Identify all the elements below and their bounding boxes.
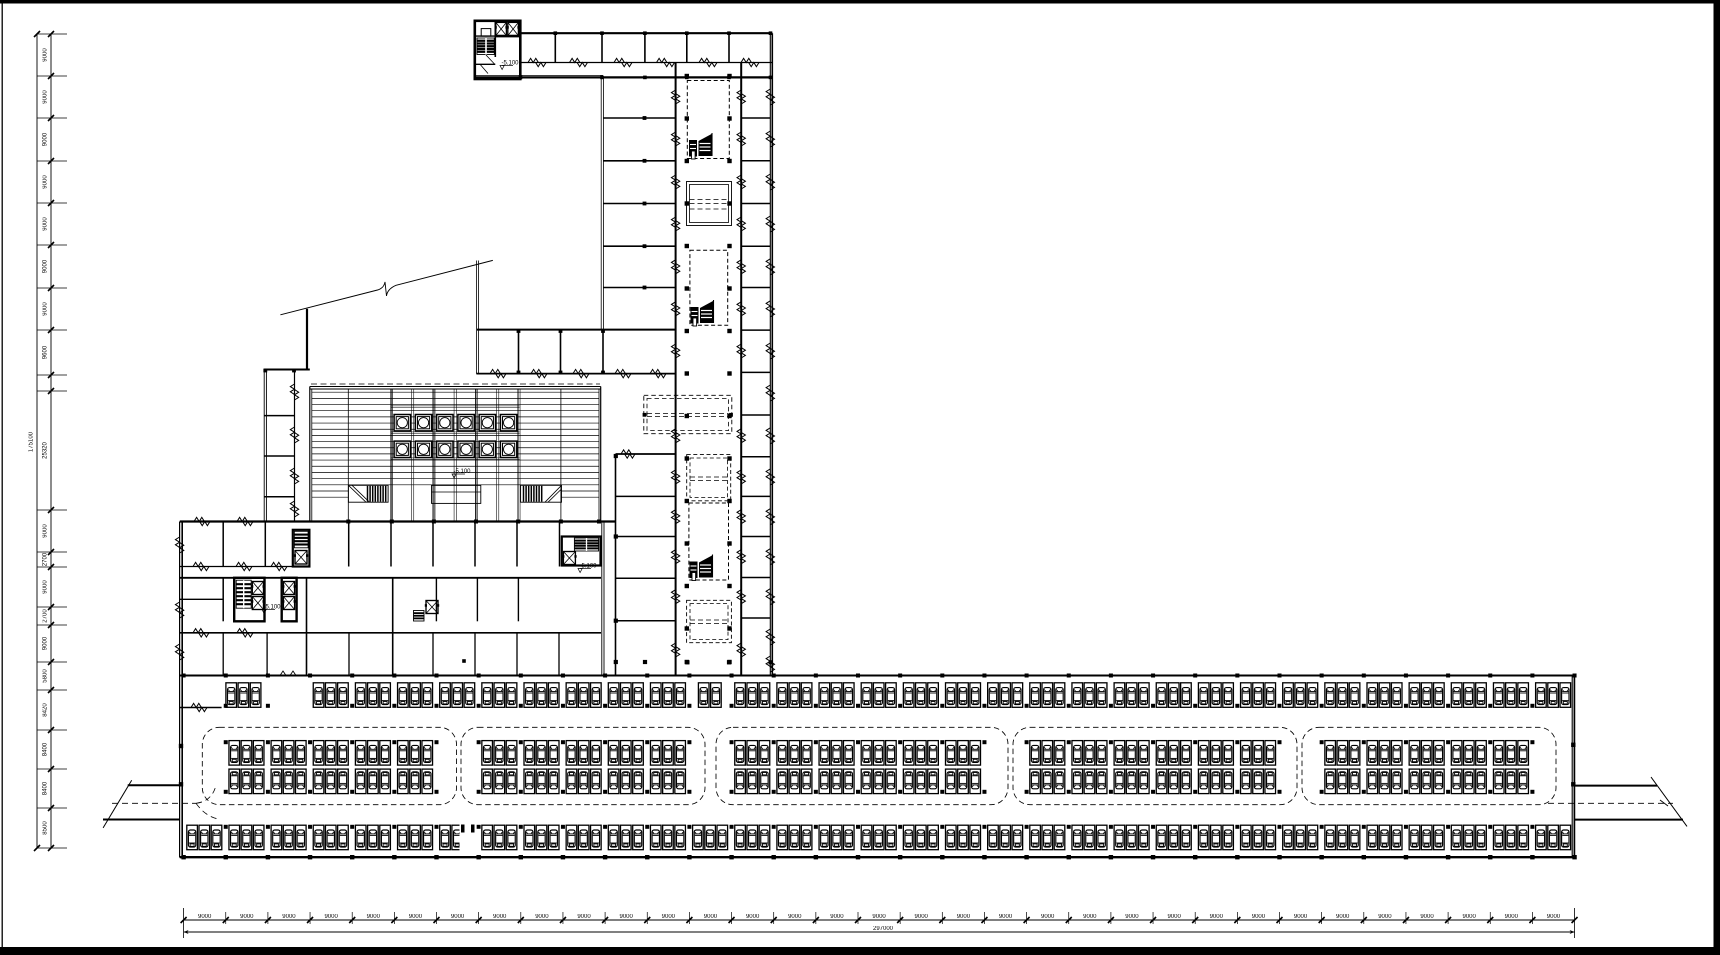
- svg-text:-5.100: -5.100: [502, 60, 520, 66]
- svg-text:297000: 297000: [873, 926, 894, 932]
- svg-text:9000: 9000: [1210, 914, 1224, 920]
- svg-text:9000: 9000: [493, 914, 507, 920]
- svg-text:9000: 9000: [788, 914, 802, 920]
- svg-text:8400: 8400: [43, 742, 49, 756]
- svg-text:8420: 8420: [43, 703, 49, 717]
- svg-text:9000: 9000: [577, 914, 591, 920]
- svg-text:9000: 9000: [619, 914, 633, 920]
- svg-text:9000: 9000: [1083, 914, 1097, 920]
- svg-text:9000: 9000: [1041, 914, 1055, 920]
- svg-text:9000: 9000: [43, 217, 49, 231]
- svg-text:-5.100: -5.100: [264, 604, 282, 610]
- svg-text:2700: 2700: [43, 552, 49, 566]
- svg-text:9000: 9000: [1547, 914, 1561, 920]
- svg-text:8400: 8400: [43, 781, 49, 795]
- svg-text:9000: 9000: [240, 914, 254, 920]
- svg-text:9000: 9000: [915, 914, 929, 920]
- svg-text:9000: 9000: [1294, 914, 1308, 920]
- svg-text:9000: 9000: [1125, 914, 1139, 920]
- svg-text:9000: 9000: [409, 914, 423, 920]
- svg-text:9000: 9000: [830, 914, 844, 920]
- svg-text:5800: 5800: [43, 669, 49, 683]
- svg-text:9000: 9000: [1378, 914, 1392, 920]
- svg-text:9000: 9000: [451, 914, 465, 920]
- svg-text:9000: 9000: [1462, 914, 1476, 920]
- svg-text:9000: 9000: [957, 914, 971, 920]
- svg-text:9000: 9000: [198, 914, 212, 920]
- svg-text:9000: 9000: [535, 914, 549, 920]
- svg-text:9000: 9000: [282, 914, 296, 920]
- svg-text:9000: 9000: [662, 914, 676, 920]
- svg-text:9000: 9000: [43, 580, 49, 594]
- svg-text:9600: 9600: [43, 345, 49, 359]
- svg-text:9000: 9000: [1252, 914, 1266, 920]
- svg-text:9000: 9000: [43, 90, 49, 104]
- svg-text:9000: 9000: [43, 175, 49, 189]
- svg-text:9000: 9000: [43, 524, 49, 538]
- svg-text:9000: 9000: [367, 914, 381, 920]
- svg-text:9000: 9000: [1336, 914, 1350, 920]
- svg-text:9000: 9000: [43, 132, 49, 146]
- svg-text:2700: 2700: [43, 609, 49, 623]
- svg-text:175100: 175100: [29, 431, 35, 452]
- svg-text:9000: 9000: [1505, 914, 1519, 920]
- svg-text:9000: 9000: [43, 259, 49, 273]
- svg-text:9000: 9000: [872, 914, 886, 920]
- svg-text:8500: 8500: [43, 821, 49, 835]
- svg-text:-5.100: -5.100: [580, 563, 598, 569]
- svg-text:9000: 9000: [999, 914, 1013, 920]
- svg-text:9000: 9000: [324, 914, 338, 920]
- svg-text:25320: 25320: [43, 441, 49, 458]
- svg-text:9000: 9000: [746, 914, 760, 920]
- svg-text:9000: 9000: [1420, 914, 1434, 920]
- svg-text:9000: 9000: [704, 914, 718, 920]
- svg-text:9000: 9000: [1167, 914, 1181, 920]
- svg-text:9000: 9000: [43, 48, 49, 62]
- svg-text:9000: 9000: [43, 302, 49, 316]
- svg-text:9000: 9000: [43, 636, 49, 650]
- svg-text:-5.100: -5.100: [454, 469, 472, 475]
